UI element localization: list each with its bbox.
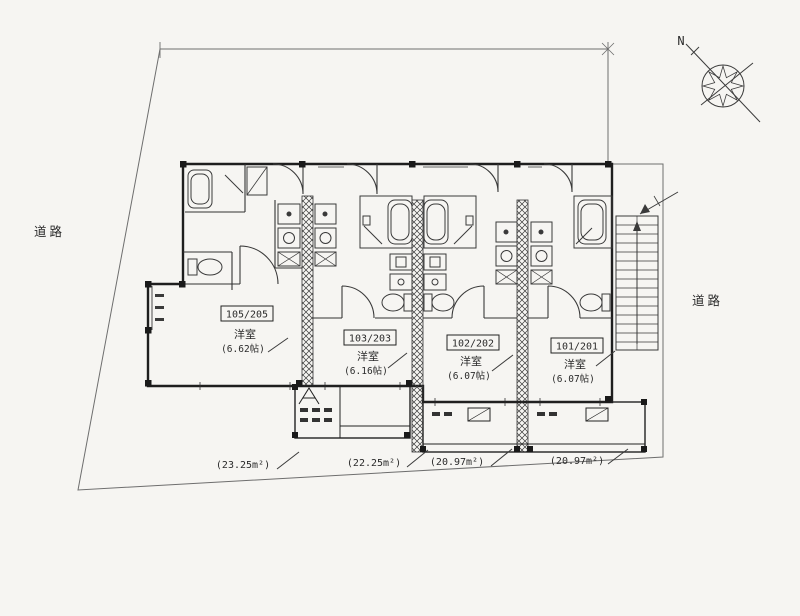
toilet-tank: [404, 294, 412, 311]
washbasin-icon: [390, 254, 412, 270]
unit-101-fixtures: [531, 196, 612, 311]
floor-area-103: (22.25m²): [347, 458, 401, 469]
toilet-tank: [602, 294, 610, 311]
bathtub-icon: [388, 200, 412, 244]
toilet-tank: [188, 259, 197, 275]
washer-icon: [424, 274, 446, 290]
toilet-icon: [432, 294, 454, 311]
site-boundary: [78, 42, 663, 490]
unit-number: 103/203: [349, 334, 391, 345]
balconies: [295, 386, 645, 452]
door-swings: [240, 164, 580, 318]
stove-icon: [531, 246, 552, 266]
unit-number: 102/202: [452, 339, 494, 350]
bathroom: [360, 196, 412, 248]
room-type: 洋室: [564, 357, 586, 371]
bathtub-icon: [424, 200, 448, 244]
unit-102-label: 102/202 洋室 (6.07帖): [447, 335, 499, 382]
floor-area-105: (23.25m²): [216, 460, 270, 471]
unit-number: 105/205: [226, 310, 268, 321]
room-type: 洋室: [357, 349, 379, 363]
toilet-icon: [198, 259, 222, 275]
unit-105-label: 105/205 洋室 (6.62帖): [221, 306, 273, 355]
room-type: 洋室: [234, 327, 256, 341]
toilet-icon: [580, 294, 602, 311]
road-label-right: 道路: [692, 293, 723, 308]
water-heater-icon: [299, 388, 319, 404]
room-size: (6.62帖): [221, 343, 265, 355]
stove-icon: [315, 228, 336, 248]
toilet-tank: [424, 294, 432, 311]
staircase: [616, 192, 678, 350]
north-label: N: [677, 34, 684, 48]
road-label-left: 道路: [34, 224, 65, 239]
unit-102-fixtures: [424, 196, 517, 311]
floor-area-102: (20.97m²): [430, 457, 484, 468]
unit-101-label: 101/201 洋室 (6.07帖): [551, 338, 603, 385]
bath-door: [225, 175, 243, 193]
unit-number: 101/201: [556, 342, 598, 353]
bathtub-icon: [188, 170, 212, 208]
room-size: (6.07帖): [447, 370, 491, 382]
north-compass-icon: [686, 44, 760, 122]
balcony-102-101: [423, 402, 645, 452]
washbasin-icon: [424, 254, 446, 270]
washer-icon: [390, 274, 412, 290]
bathroom: [424, 196, 476, 248]
floorplan-page: N 道路 道路: [0, 0, 800, 616]
room-size: (6.16帖): [344, 365, 388, 377]
stove-icon: [278, 228, 300, 248]
room-type: 洋室: [460, 354, 482, 368]
toilet-icon: [382, 294, 404, 311]
unit-103-label: 103/203 洋室 (6.16帖): [344, 330, 396, 377]
floor-area-101: (20.97m²): [550, 456, 604, 467]
stove-icon: [496, 246, 517, 266]
floorplan-drawing: N 道路 道路: [0, 0, 800, 616]
room-size: (6.07帖): [551, 373, 595, 385]
